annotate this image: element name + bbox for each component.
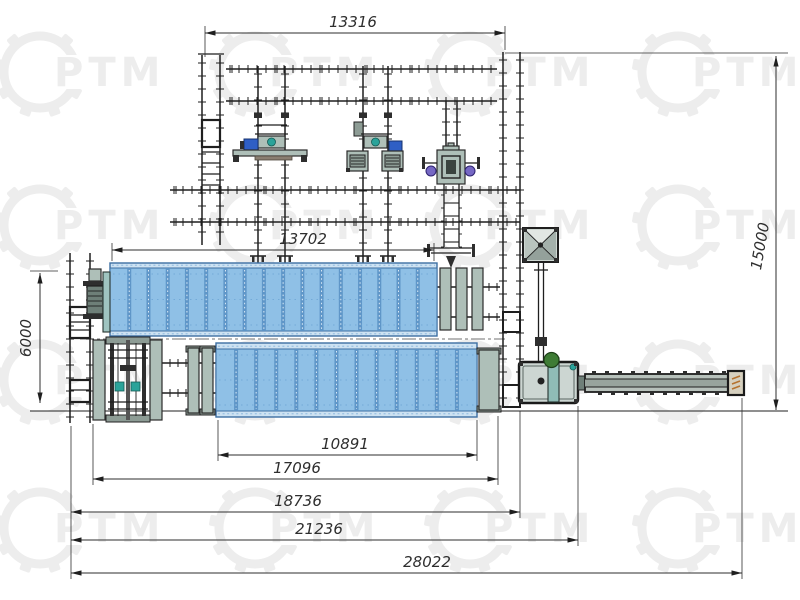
dim-label-28022: 28022 [403,553,451,571]
bucket-elevator [422,143,480,268]
watermark-logo: РТМ [424,33,596,117]
watermark-logo: РТМ [632,186,800,270]
rotary-drum-1 [110,263,437,336]
support-column [254,66,262,263]
drive-hub-icon [372,138,380,146]
motor-blue-icon [244,139,258,151]
watermark-logo: РТМ [0,33,165,117]
screen-machine-right [346,113,403,172]
dim-label-18736: 18736 [274,492,322,510]
ladder-box [503,312,520,332]
drawing-page: РТМРТМРТМРТМРТМРТМРТМРТМРТМРТМРТМРТМРТМР… [0,0,800,600]
dimension-17096: 17096 [93,416,498,485]
watermark-text: РТМ [54,203,165,249]
support-column [198,55,206,245]
watermark-logo: РТМ [0,186,165,270]
watermark-text: РТМ [54,50,165,96]
motor-blue-icon [389,141,402,152]
dim-label-drum1-length: 13702 [279,230,327,248]
drum1-right-stands [440,268,483,330]
watermark-text: РТМ [484,506,595,552]
watermark-logo: РТМ [632,489,800,573]
dim-label-17096: 17096 [273,459,321,477]
watermark-text: РТМ [692,203,800,249]
technical-drawing: РТМРТМРТМРТМРТМРТМРТМРТМРТМРТМРТМРТМРТМР… [0,0,800,600]
drum2-right-stand [477,348,501,412]
watermark-logo: РТМ [209,33,381,117]
dim-label-left-height: 6000 [17,319,35,357]
dimension-10891: 10891 [218,420,477,461]
furnace-unit [93,337,162,422]
watermark-logo: РТМ [0,489,165,573]
drum2-left-stands [186,346,215,415]
support-column [442,101,450,146]
motor-purple-icon [426,166,436,176]
dimension-6000: 6000 [17,273,40,403]
dim-label-top-span: 13316 [329,13,377,31]
cyclone-hopper [523,228,558,362]
dim-label-10891: 10891 [321,435,369,453]
watermark-text: РТМ [692,506,800,552]
watermark-logo: РТМ [632,33,800,117]
watermark-logo: РТМ [209,186,381,270]
dim-label-21236: 21236 [295,520,343,538]
screw-conveyor [578,371,744,395]
motor-purple-icon [465,166,475,176]
fan-scroll-icon [544,353,559,368]
drive-hub-icon [268,138,276,146]
rotary-drum-2 [216,343,477,417]
screen-machine-left [233,113,307,162]
watermark-text: РТМ [692,50,800,96]
pipe-collar [535,337,547,346]
